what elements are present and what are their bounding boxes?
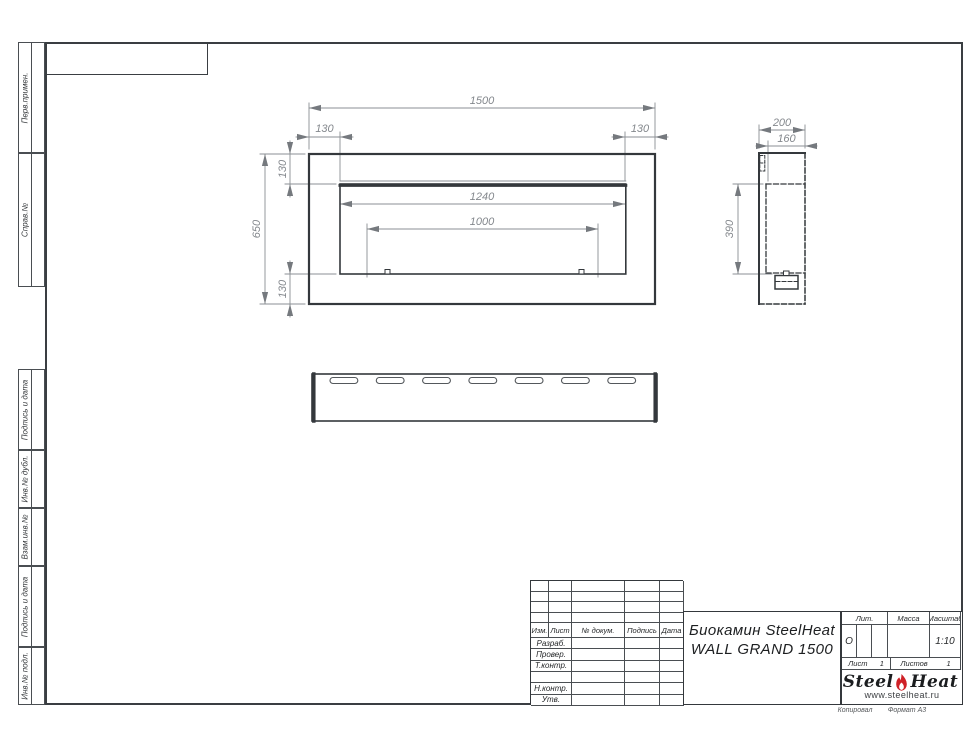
dim-front-height: 650 — [251, 219, 263, 238]
col-list: Лист — [549, 623, 572, 638]
dim-side-inner-depth: 160 — [777, 133, 796, 145]
side-view: 200 160 390 — [724, 117, 817, 304]
sheets-label: Листов — [900, 659, 927, 668]
lit-mass-scale-values: О 1:10 — [842, 625, 962, 658]
col-data: Дата — [660, 623, 684, 638]
mass-label: Масса — [888, 612, 930, 625]
logo-text-steel: Steel — [843, 672, 894, 692]
logo-url: www.steelheat.ru — [842, 690, 962, 700]
row-utv: Утв. — [531, 695, 572, 706]
company-logo-cell: Steel Heat www.steelheat.ru — [842, 670, 962, 703]
doc-title-line1: Биокамин SteelHeat — [689, 621, 835, 640]
mass-value — [888, 625, 930, 658]
row-empty — [531, 672, 572, 683]
document-title-cell: Биокамин SteelHeat WALL GRAND 1500 — [683, 611, 841, 705]
front-view: 1500 130 130 650 130 130 1240 1000 — [251, 95, 668, 317]
sheet-value: 1 — [880, 659, 884, 668]
title-block-left: Изм. Лист № докум. Подпись Дата Разраб. … — [530, 580, 683, 705]
dim-opening-width: 1240 — [470, 191, 495, 203]
dim-side-opening-height: 390 — [724, 219, 736, 238]
logo-text-heat: Heat — [910, 672, 958, 692]
scale-label: Масштаб — [930, 612, 961, 625]
top-view — [312, 374, 657, 421]
sheet-count-row: Лист 1 Листов 1 — [842, 658, 962, 670]
row-prover: Провер. — [531, 649, 572, 660]
dim-side-depth: 200 — [772, 117, 792, 129]
sheets-value: 1 — [946, 659, 950, 668]
title-block-header-row: Изм. Лист № докум. Подпись Дата — [531, 623, 683, 638]
row-tkontr: Т.контр. — [531, 661, 572, 672]
row-razrab: Разраб. — [531, 638, 572, 649]
burner-slots — [330, 378, 636, 384]
sheet-label: Лист — [848, 659, 867, 668]
dim-front-right-offset: 130 — [631, 123, 650, 135]
col-izm: Изм. — [531, 623, 549, 638]
revision-table — [531, 581, 683, 623]
col-docnum: № докум. — [572, 623, 625, 638]
row-nkontr: Н.контр. — [531, 683, 572, 694]
lit-value: О — [842, 625, 857, 658]
lit-label: Лит. — [842, 612, 888, 625]
col-podpis: Подпись — [625, 623, 660, 638]
signature-rows: Разраб. Провер. Т.контр. Н.контр. Утв. — [531, 638, 683, 706]
drawing-sheet: Перв.примен. Справ.№ Подпись и дата Инв.… — [0, 0, 970, 749]
scale-value: 1:10 — [930, 625, 961, 658]
dim-front-width: 1500 — [470, 95, 495, 107]
dim-front-bottom-offset: 130 — [277, 279, 289, 298]
steelheat-logo: Steel Heat — [842, 672, 959, 692]
flame-icon — [894, 674, 909, 691]
doc-title-line2: WALL GRAND 1500 — [691, 640, 833, 659]
dim-front-left-offset: 130 — [315, 123, 334, 135]
lit-mass-scale-header: Лит. Масса Масштаб — [842, 612, 962, 625]
dim-burner-width: 1000 — [470, 216, 495, 228]
dim-front-top-offset: 130 — [277, 159, 289, 178]
title-block-right: Лит. Масса Масштаб О 1:10 Лист 1 Листов … — [841, 611, 963, 705]
format-label: Формат А3 — [876, 707, 938, 714]
